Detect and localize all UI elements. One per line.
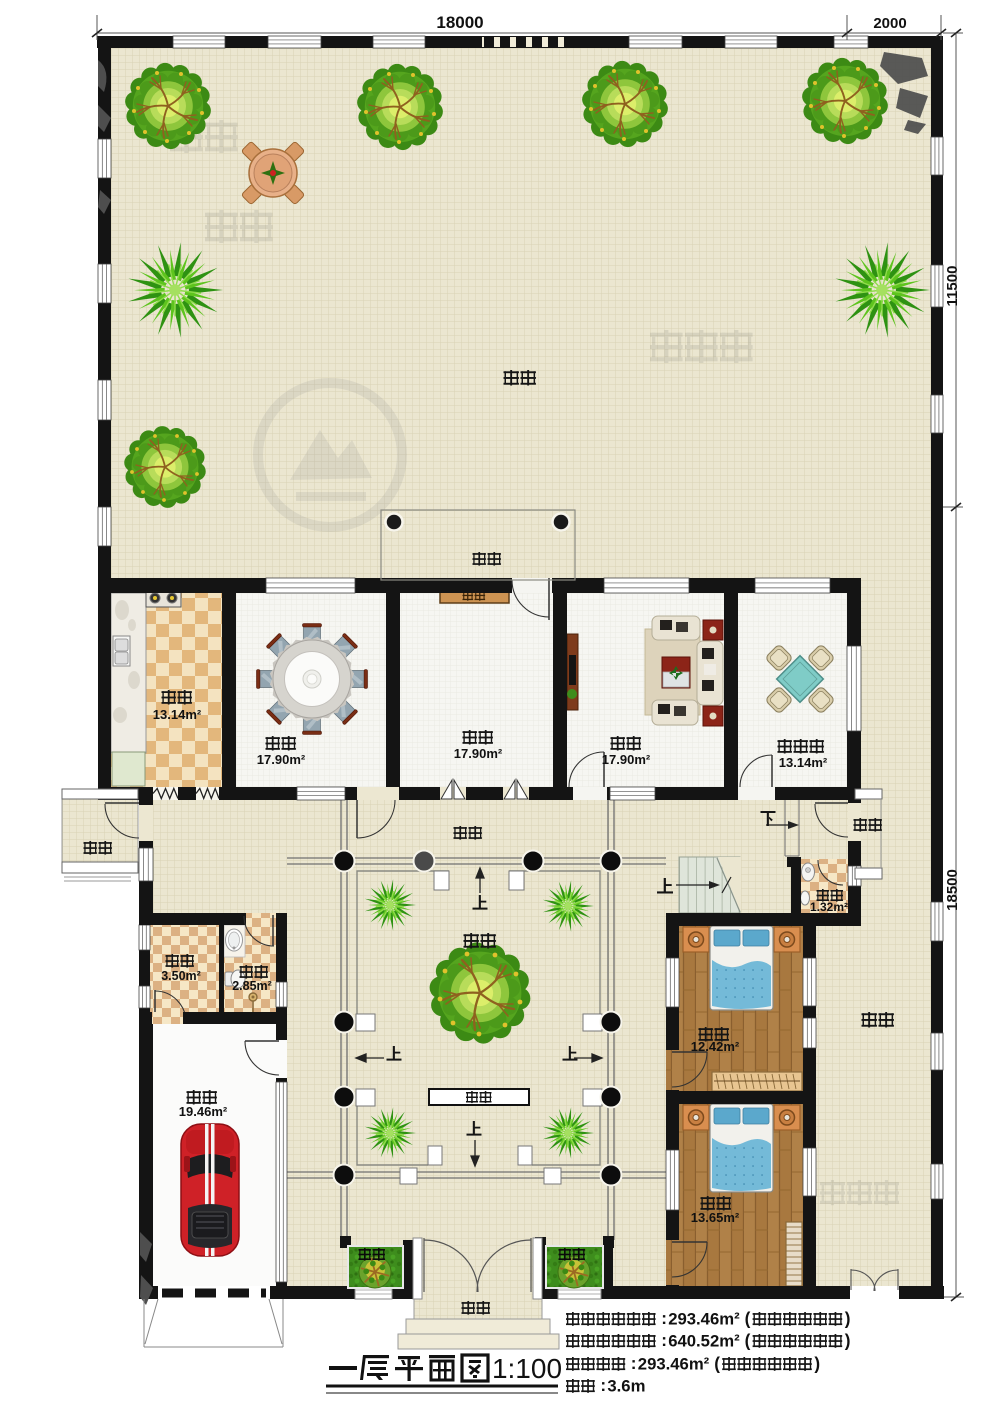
svg-text:293.46m²: 293.46m² xyxy=(638,1355,710,1374)
svg-text:(: ( xyxy=(714,1354,720,1374)
svg-text:): ) xyxy=(814,1354,820,1374)
svg-text:18500: 18500 xyxy=(944,869,961,911)
svg-text:): ) xyxy=(845,1331,851,1351)
svg-text:293.46m²: 293.46m² xyxy=(668,1310,740,1329)
svg-text:(: ( xyxy=(745,1331,751,1351)
svg-text:3.6m: 3.6m xyxy=(607,1377,645,1396)
svg-text:1:100: 1:100 xyxy=(492,1353,562,1384)
svg-text:13.65m²: 13.65m² xyxy=(691,1210,740,1225)
svg-text:(: ( xyxy=(745,1309,751,1329)
svg-text:2000: 2000 xyxy=(873,15,906,32)
svg-text:17.90m²: 17.90m² xyxy=(454,746,503,761)
svg-text:1.32m²: 1.32m² xyxy=(810,900,848,914)
svg-text:18000: 18000 xyxy=(436,13,483,32)
svg-text:2.85m²: 2.85m² xyxy=(232,979,272,993)
svg-text:13.14m²: 13.14m² xyxy=(153,707,202,722)
svg-text::: : xyxy=(631,1353,637,1373)
svg-text:13.14m²: 13.14m² xyxy=(779,755,828,770)
svg-text::: : xyxy=(661,1308,667,1328)
svg-text:): ) xyxy=(845,1309,851,1329)
svg-text::: : xyxy=(600,1375,606,1395)
svg-text:640.52m²: 640.52m² xyxy=(668,1332,740,1351)
svg-text:17.90m²: 17.90m² xyxy=(257,752,306,767)
svg-text:12.42m²: 12.42m² xyxy=(691,1039,740,1054)
svg-text:19.46m²: 19.46m² xyxy=(179,1104,228,1119)
svg-text:3.50m²: 3.50m² xyxy=(161,969,201,983)
svg-text:17.90m²: 17.90m² xyxy=(602,752,651,767)
svg-text:11500: 11500 xyxy=(944,266,961,307)
svg-text::: : xyxy=(661,1330,667,1350)
